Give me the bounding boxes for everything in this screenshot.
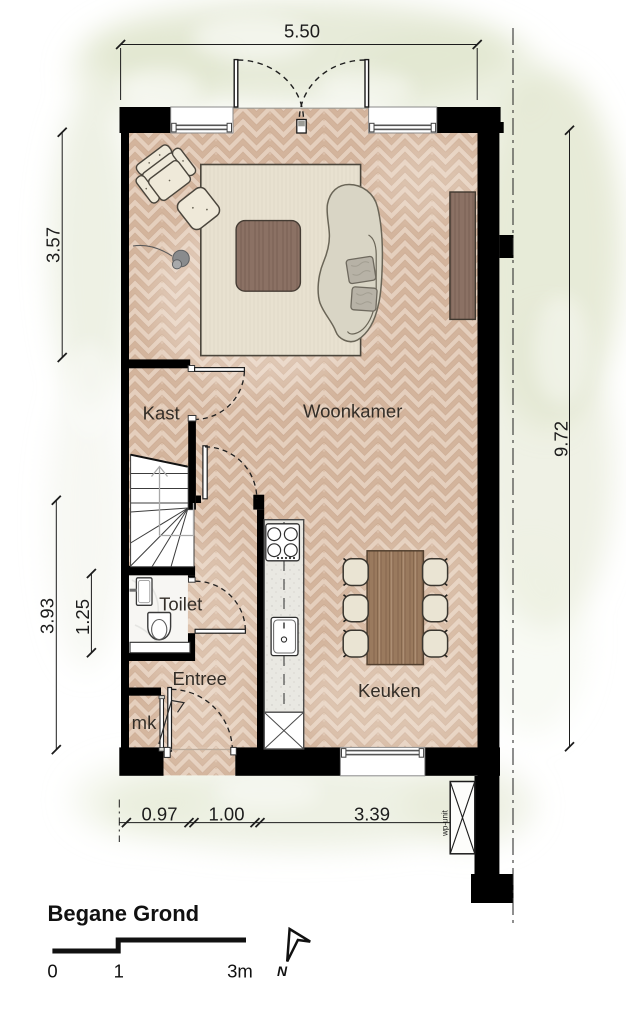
svg-text:Woonkamer: Woonkamer <box>303 400 402 421</box>
svg-text:1: 1 <box>114 961 124 982</box>
svg-text:5.50: 5.50 <box>284 21 320 42</box>
svg-text:1.25: 1.25 <box>72 599 93 635</box>
svg-text:Begane Grond: Begane Grond <box>48 901 200 926</box>
svg-text:9.72: 9.72 <box>551 421 572 457</box>
svg-text:Entree: Entree <box>172 668 227 689</box>
svg-text:Kast: Kast <box>143 403 180 424</box>
svg-text:3.93: 3.93 <box>37 598 58 634</box>
svg-text:1.00: 1.00 <box>208 804 244 825</box>
svg-text:0: 0 <box>47 961 57 982</box>
svg-text:Keuken: Keuken <box>358 680 421 701</box>
svg-text:3m: 3m <box>227 961 253 982</box>
svg-text:3.57: 3.57 <box>43 227 64 263</box>
svg-text:0.97: 0.97 <box>141 804 177 825</box>
svg-text:mk: mk <box>132 712 157 733</box>
svg-text:Toilet: Toilet <box>159 594 202 615</box>
svg-text:wp-unit: wp-unit <box>441 809 450 837</box>
svg-text:3.39: 3.39 <box>354 804 390 825</box>
svg-text:N: N <box>277 963 288 979</box>
